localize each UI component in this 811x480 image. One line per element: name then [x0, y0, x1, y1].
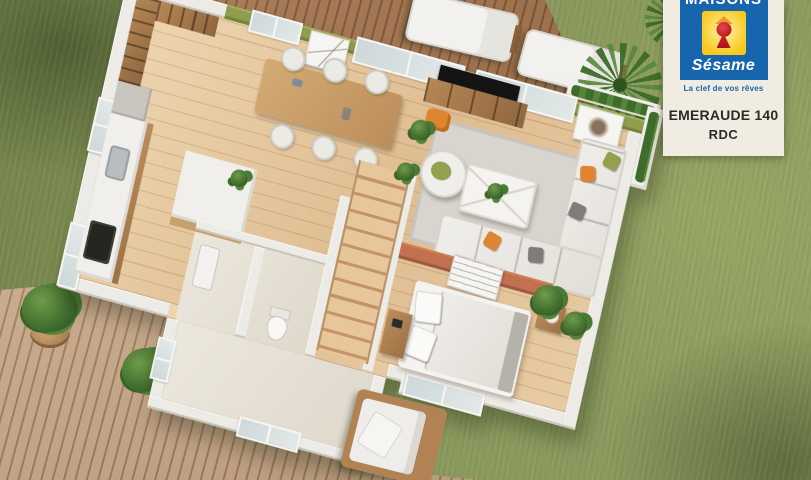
brand-name-top: MAISONS — [680, 0, 768, 8]
cushion — [528, 247, 544, 264]
brand-logo: MAISONS Sésame — [680, 0, 768, 80]
cushion — [580, 166, 596, 182]
bed-pillow — [414, 290, 443, 324]
floor-label: RDC — [663, 127, 784, 142]
brand-card: MAISONS Sésame La clef de vos rêves EMER… — [663, 0, 784, 156]
floor-plan-render: MAISONS Sésame La clef de vos rêves EMER… — [0, 0, 811, 480]
brand-name-bottom: Sésame — [680, 57, 768, 75]
keyhole-logo-icon — [702, 11, 746, 55]
model-name: EMERAUDE 140 — [663, 107, 784, 123]
brand-tagline: La clef de vos rêves — [663, 84, 784, 93]
